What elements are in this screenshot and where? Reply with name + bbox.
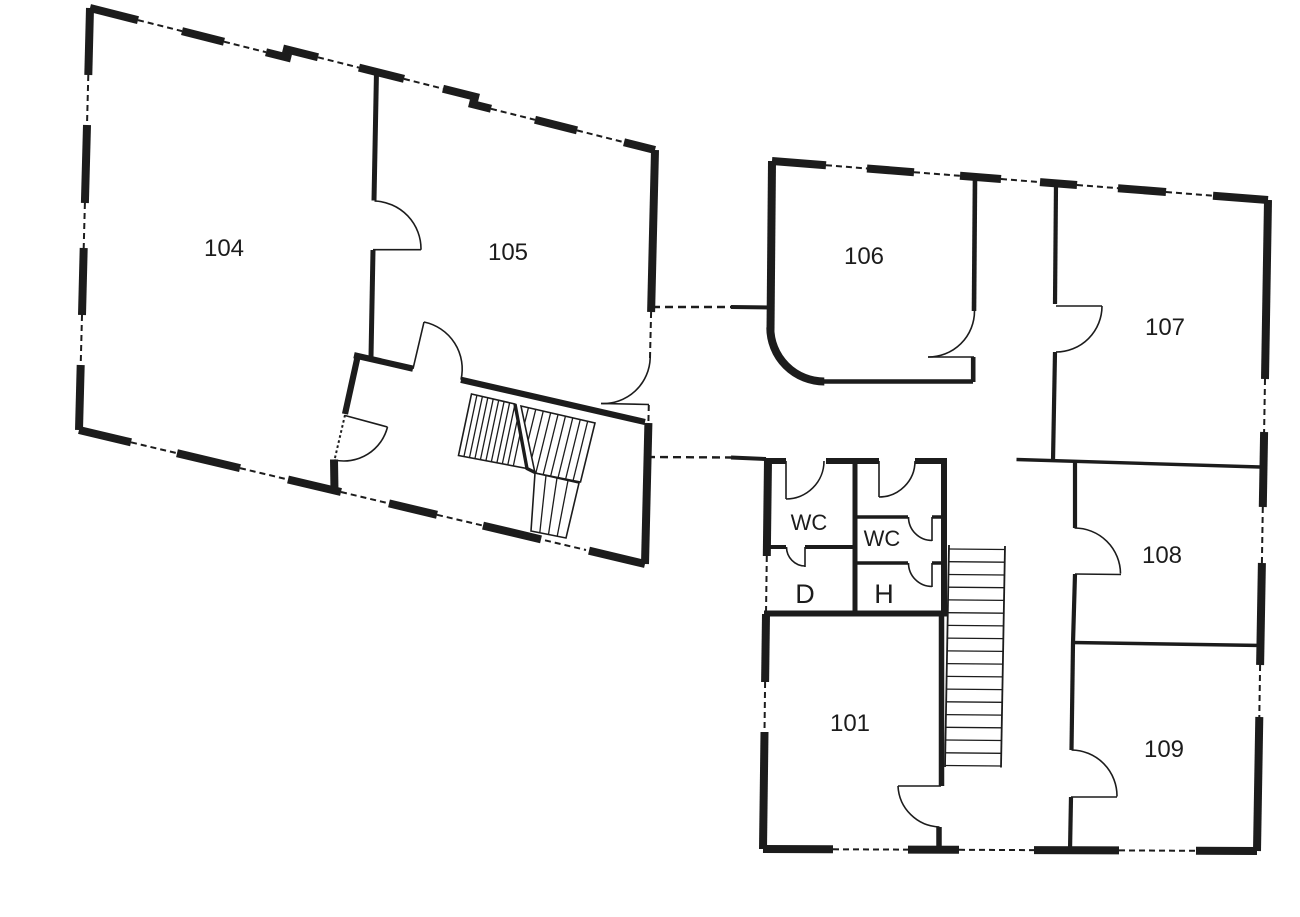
svg-text:107: 107 [1145, 314, 1185, 341]
svg-text:101: 101 [830, 710, 870, 737]
svg-text:104: 104 [204, 235, 244, 262]
svg-text:106: 106 [844, 243, 884, 270]
svg-text:108: 108 [1142, 542, 1182, 569]
svg-text:WC: WC [791, 510, 828, 535]
svg-text:H: H [874, 579, 894, 609]
svg-text:109: 109 [1144, 736, 1184, 763]
svg-text:D: D [795, 579, 815, 609]
svg-text:WC: WC [864, 526, 901, 551]
svg-text:105: 105 [488, 239, 528, 266]
